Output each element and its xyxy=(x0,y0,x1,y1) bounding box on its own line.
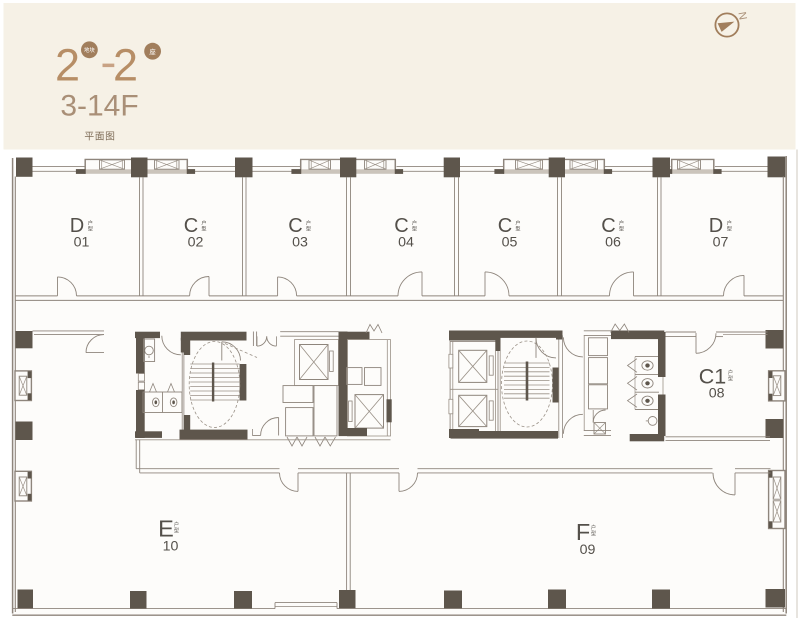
svg-text:户: 户 xyxy=(619,219,624,227)
svg-text:型: 型 xyxy=(174,526,179,534)
svg-text:户: 户 xyxy=(201,219,206,227)
svg-text:03: 03 xyxy=(292,234,308,250)
svg-text:座: 座 xyxy=(149,47,156,56)
svg-text:型: 型 xyxy=(306,225,311,233)
svg-text:3-14F: 3-14F xyxy=(60,90,138,123)
svg-text:型: 型 xyxy=(619,225,624,233)
svg-text:户: 户 xyxy=(412,219,417,227)
svg-text:型: 型 xyxy=(591,529,596,537)
svg-text:08: 08 xyxy=(709,385,725,401)
svg-text:户: 户 xyxy=(515,219,520,227)
svg-text:F: F xyxy=(576,519,590,545)
svg-text:05: 05 xyxy=(502,234,518,250)
svg-text:02: 02 xyxy=(188,234,204,250)
svg-text:07: 07 xyxy=(713,234,729,250)
svg-text:户: 户 xyxy=(174,520,179,528)
svg-text:06: 06 xyxy=(605,234,621,250)
svg-text:型: 型 xyxy=(88,225,93,233)
svg-text:平面图: 平面图 xyxy=(84,131,115,143)
svg-text:型: 型 xyxy=(201,225,206,233)
svg-text:01: 01 xyxy=(74,234,90,250)
svg-text:10: 10 xyxy=(163,539,179,555)
svg-text:地块: 地块 xyxy=(84,46,95,54)
svg-text:型: 型 xyxy=(412,225,417,233)
svg-text:户: 户 xyxy=(306,219,311,227)
svg-text:户: 户 xyxy=(727,219,732,227)
svg-text:户: 户 xyxy=(591,523,596,531)
svg-text:户: 户 xyxy=(88,219,93,227)
svg-text:型: 型 xyxy=(728,374,733,382)
svg-text:型: 型 xyxy=(727,225,732,233)
svg-text:2: 2 xyxy=(113,40,138,91)
svg-text:户: 户 xyxy=(728,368,733,376)
svg-text:2: 2 xyxy=(55,40,80,91)
svg-text:09: 09 xyxy=(580,542,596,558)
svg-text:04: 04 xyxy=(398,234,414,250)
svg-text:E: E xyxy=(158,515,174,541)
svg-text:型: 型 xyxy=(515,225,520,233)
